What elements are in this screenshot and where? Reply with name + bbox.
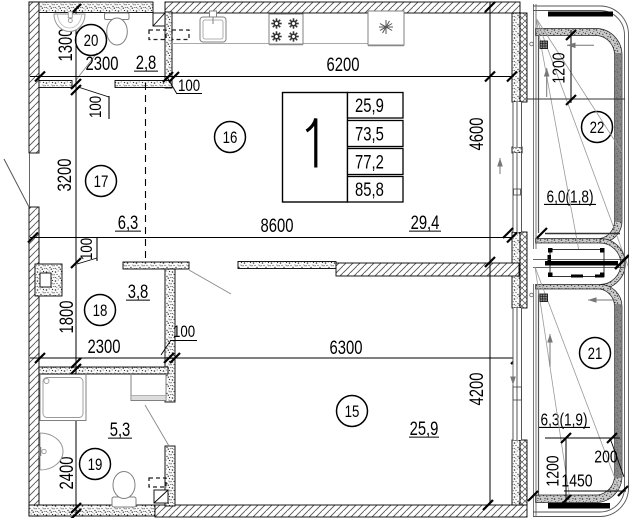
svg-text:3200: 3200 (54, 159, 75, 192)
svg-text:85,8: 85,8 (355, 179, 384, 200)
svg-text:1800: 1800 (56, 301, 77, 334)
svg-text:1200: 1200 (549, 52, 569, 83)
svg-text:1300: 1300 (55, 29, 76, 62)
svg-text:2,8: 2,8 (136, 52, 157, 73)
svg-text:100: 100 (173, 323, 195, 342)
svg-text:77,2: 77,2 (355, 152, 384, 173)
svg-text:25,9: 25,9 (410, 418, 439, 439)
svg-text:6200: 6200 (327, 54, 360, 75)
svg-text:1450: 1450 (561, 471, 592, 491)
svg-text:19: 19 (88, 456, 103, 475)
svg-text:3,8: 3,8 (128, 281, 149, 302)
svg-text:6,3: 6,3 (118, 212, 139, 233)
svg-text:2300: 2300 (88, 336, 121, 357)
svg-text:15: 15 (345, 403, 360, 422)
svg-text:17: 17 (94, 173, 109, 192)
svg-text:1200: 1200 (543, 455, 563, 486)
svg-text:6300: 6300 (330, 337, 363, 358)
svg-text:2300: 2300 (86, 53, 119, 74)
svg-text:100: 100 (178, 77, 200, 96)
svg-text:100: 100 (78, 238, 97, 260)
svg-text:4200: 4200 (466, 373, 487, 406)
svg-text:21: 21 (588, 345, 603, 364)
svg-text:4600: 4600 (466, 118, 487, 151)
svg-text:5,3: 5,3 (110, 419, 131, 440)
svg-text:18: 18 (93, 302, 108, 321)
svg-text:200: 200 (594, 447, 617, 467)
svg-text:20: 20 (84, 32, 99, 51)
svg-text:29,4: 29,4 (411, 212, 440, 233)
svg-text:8600: 8600 (261, 215, 294, 236)
svg-text:25,9: 25,9 (355, 95, 384, 116)
svg-text:16: 16 (223, 129, 238, 148)
svg-text:100: 100 (87, 96, 106, 118)
svg-text:73,5: 73,5 (355, 124, 384, 145)
